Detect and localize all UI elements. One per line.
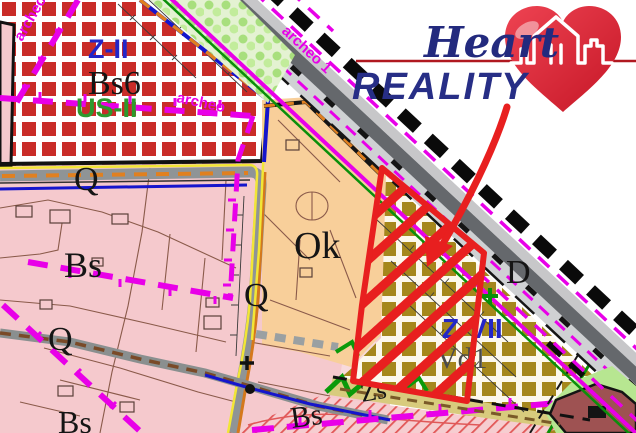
label-us2: US-II	[76, 93, 138, 123]
real-estate-map-flyer: Z-II Bs6 US-II Q Bs Q Q Bs Ok D Z-VII Vd…	[0, 0, 636, 433]
pink-sliver	[0, 22, 14, 166]
label-q: Q	[48, 321, 73, 358]
label-q: Q	[244, 277, 269, 314]
label-bs: Bs	[58, 404, 92, 433]
label-d: D	[506, 254, 531, 291]
label-z2: Z-II	[88, 34, 129, 64]
zoning-map: Z-II Bs6 US-II Q Bs Q Q Bs Ok D Z-VII Vd…	[0, 0, 636, 433]
logo-title-caps: REALITY	[352, 66, 530, 108]
poi-dot-icon	[245, 384, 255, 394]
label-bs: Bs	[288, 398, 324, 433]
logo-title-script: Heart	[423, 18, 559, 67]
label-q: Q	[74, 161, 99, 198]
agency-logo: Heart REALITY	[352, 6, 636, 112]
label-ok: Ok	[294, 225, 340, 267]
label-bs: Bs	[64, 245, 102, 285]
